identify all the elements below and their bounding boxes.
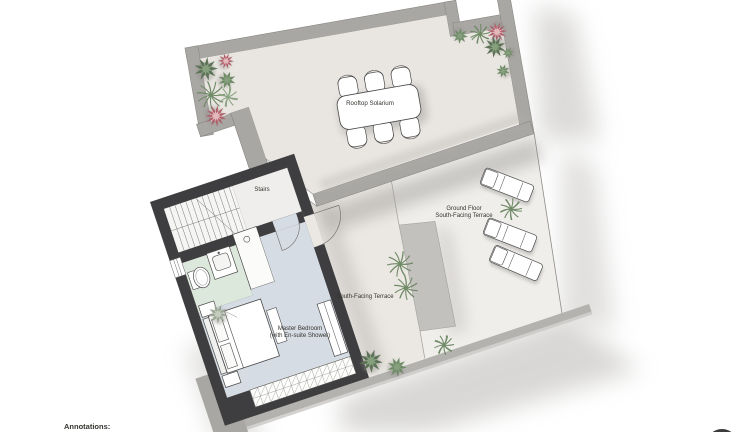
svg-text:(with En-suite Shower): (with En-suite Shower) xyxy=(270,333,330,339)
svg-text:South-Facing Terrace: South-Facing Terrace xyxy=(435,213,493,219)
svg-text:South-Facing Terrace: South-Facing Terrace xyxy=(336,294,394,300)
svg-text:Annotations:: Annotations: xyxy=(64,422,110,431)
svg-text:Stairs: Stairs xyxy=(254,187,269,193)
svg-text:Master Bedroom: Master Bedroom xyxy=(278,326,322,332)
svg-text:Ground Floor: Ground Floor xyxy=(446,206,481,212)
svg-text:Rooftop Solarium: Rooftop Solarium xyxy=(346,100,394,107)
